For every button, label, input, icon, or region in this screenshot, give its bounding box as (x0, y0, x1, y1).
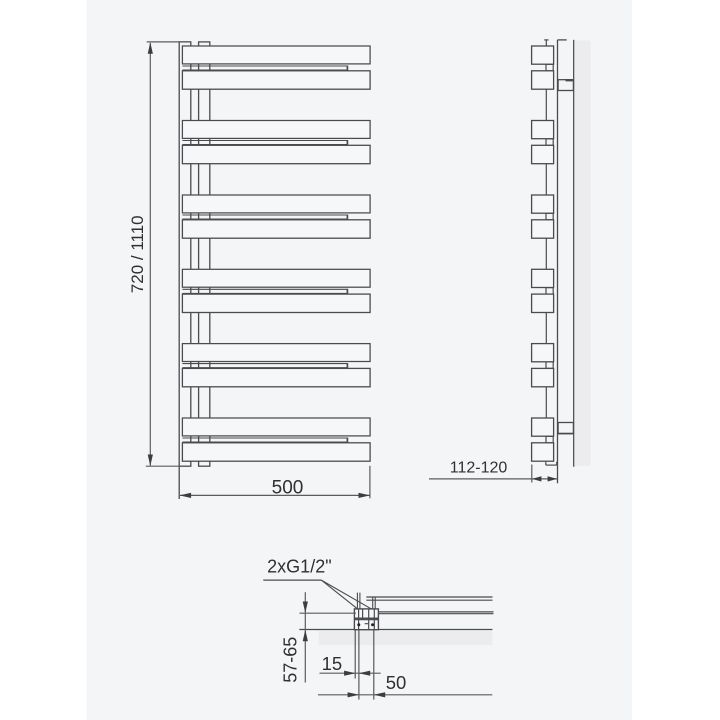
svg-text:500: 500 (272, 478, 304, 499)
svg-text:720 / 1110: 720 / 1110 (128, 215, 147, 293)
svg-text:50: 50 (386, 672, 407, 693)
svg-text:15: 15 (322, 653, 343, 674)
svg-text:57-65: 57-65 (280, 637, 300, 683)
svg-text:112-120: 112-120 (450, 460, 508, 477)
svg-text:2xG1/2": 2xG1/2" (267, 557, 331, 577)
